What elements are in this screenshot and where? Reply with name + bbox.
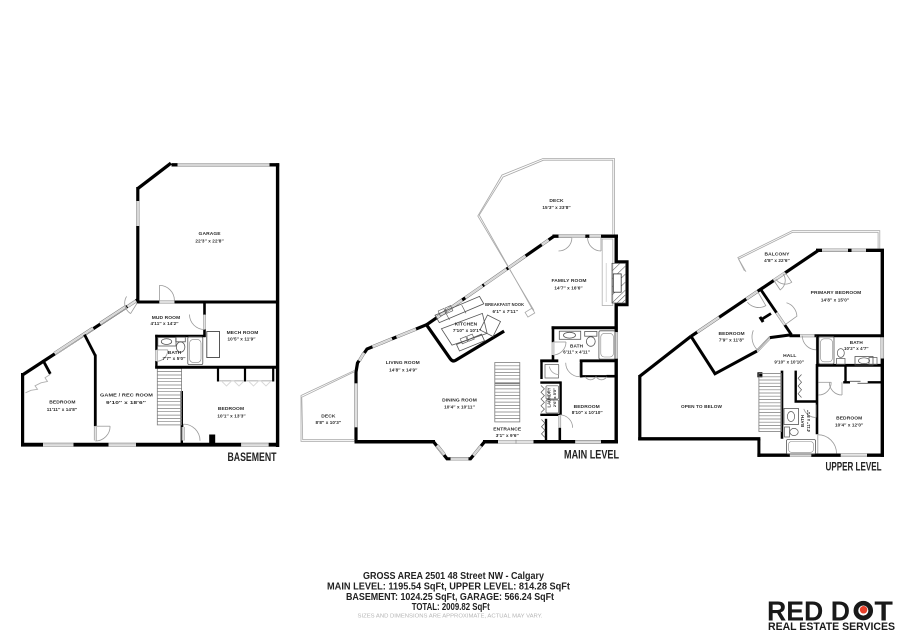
- svg-text:PRIMARY BEDROOM: PRIMARY BEDROOM: [811, 290, 862, 296]
- svg-text:DECK: DECK: [321, 413, 336, 419]
- svg-text:MAIN LEVEL: 1195.54 SqFt, UPPE: MAIN LEVEL: 1195.54 SqFt, UPPER LEVEL: 8…: [327, 581, 571, 592]
- svg-text:TOTAL: 2009.82 SqFt: TOTAL: 2009.82 SqFt: [412, 602, 491, 613]
- svg-text:8′8″ x 10′3″: 8′8″ x 10′3″: [316, 420, 342, 425]
- svg-text:REAL ESTATE SERVICES: REAL ESTATE SERVICES: [768, 621, 895, 633]
- svg-text:10′2″ x 4′7″: 10′2″ x 4′7″: [844, 346, 869, 351]
- svg-text:BEDROOM: BEDROOM: [49, 400, 75, 406]
- svg-text:ENTRANCE: ENTRANCE: [493, 426, 522, 432]
- svg-text:10′1″ x 13′3″: 10′1″ x 13′3″: [217, 414, 246, 419]
- svg-text:KITCHEN: KITCHEN: [455, 321, 478, 327]
- svg-text:4′11″ x 14′2″: 4′11″ x 14′2″: [150, 321, 179, 326]
- svg-text:22′3″ x 22′8″: 22′3″ x 22′8″: [195, 238, 224, 243]
- svg-text:6′11″ x 4′11″: 6′11″ x 4′11″: [563, 349, 590, 354]
- svg-text:11′11″ x 14′8″: 11′11″ x 14′8″: [47, 407, 78, 412]
- svg-text:14′8″ x 14′9″: 14′8″ x 14′9″: [389, 367, 418, 372]
- svg-text:OPEN TO BELOW: OPEN TO BELOW: [681, 404, 723, 409]
- svg-text:DINING ROOM: DINING ROOM: [442, 397, 477, 403]
- svg-text:BALCONY: BALCONY: [765, 251, 791, 257]
- svg-text:6′1″ x 7′11″: 6′1″ x 7′11″: [492, 309, 518, 314]
- svg-text:3′1″ x 9′6″: 3′1″ x 9′6″: [496, 433, 520, 438]
- svg-text:MECH ROOM: MECH ROOM: [227, 330, 259, 336]
- svg-text:GAME / REC ROOM: GAME / REC ROOM: [100, 392, 153, 398]
- svg-text:GROSS AREA 2501 48 Street NW -: GROSS AREA 2501 48 Street NW - Calgary: [363, 571, 544, 582]
- svg-text:BEDROOM: BEDROOM: [718, 331, 744, 337]
- svg-text:MUD ROOM: MUD ROOM: [152, 315, 181, 321]
- svg-text:BATH: BATH: [850, 340, 864, 345]
- svg-text:15′3″ x 23′8″: 15′3″ x 23′8″: [542, 205, 571, 210]
- svg-text:BEDROOM: BEDROOM: [218, 406, 244, 412]
- svg-text:2′6″ x 5′5″: 2′6″ x 5′5″: [552, 388, 557, 407]
- svg-text:BEDROOM: BEDROOM: [836, 415, 862, 421]
- svg-text:HALL: HALL: [783, 353, 796, 359]
- svg-text:MAIN LEVEL: MAIN LEVEL: [564, 448, 619, 462]
- svg-text:BATH: BATH: [800, 415, 805, 427]
- svg-text:7′9″ x 11′8″: 7′9″ x 11′8″: [719, 338, 745, 343]
- svg-text:BEDROOM: BEDROOM: [574, 404, 600, 410]
- svg-text:4′8″ x 22′6″: 4′8″ x 22′6″: [764, 258, 790, 263]
- svg-text:LAUNDRY: LAUNDRY: [547, 387, 552, 407]
- svg-text:7′7″ x 5′0″: 7′7″ x 5′0″: [162, 356, 186, 361]
- svg-text:9′10″ x 10′10″: 9′10″ x 10′10″: [774, 359, 804, 364]
- svg-text:9′10″ x 18′6″: 9′10″ x 18′6″: [106, 400, 147, 405]
- svg-text:BATH: BATH: [570, 343, 584, 348]
- svg-text:FAMILY ROOM: FAMILY ROOM: [551, 278, 586, 284]
- svg-text:14′8″ x 15′0″: 14′8″ x 15′0″: [821, 297, 850, 302]
- svg-text:7′10″ x 10′1″: 7′10″ x 10′1″: [453, 328, 482, 333]
- svg-text:14′7″ x 16′6″: 14′7″ x 16′6″: [554, 285, 583, 290]
- svg-text:DECK: DECK: [549, 198, 564, 204]
- svg-text:10′4″ x 12′0″: 10′4″ x 12′0″: [835, 423, 864, 428]
- svg-text:BASEMENT: BASEMENT: [228, 450, 277, 464]
- svg-text:GARAGE: GARAGE: [199, 231, 222, 237]
- svg-text:10′4″ x 10′11″: 10′4″ x 10′11″: [444, 405, 475, 410]
- svg-text:8′10″ x 10′10″: 8′10″ x 10′10″: [572, 410, 604, 415]
- svg-text:SIZES AND DIMENSIONS ARE APPRO: SIZES AND DIMENSIONS ARE APPROXIMATE, AC…: [358, 614, 543, 620]
- svg-text:UPPER LEVEL: UPPER LEVEL: [826, 460, 882, 474]
- svg-text:BREAKFAST NOOK: BREAKFAST NOOK: [485, 302, 524, 308]
- svg-text:LIVING ROOM: LIVING ROOM: [386, 360, 420, 366]
- svg-text:10′5″ x 11′9″: 10′5″ x 11′9″: [227, 337, 256, 342]
- svg-text:4′11″ x 8′1″: 4′11″ x 8′1″: [806, 410, 811, 432]
